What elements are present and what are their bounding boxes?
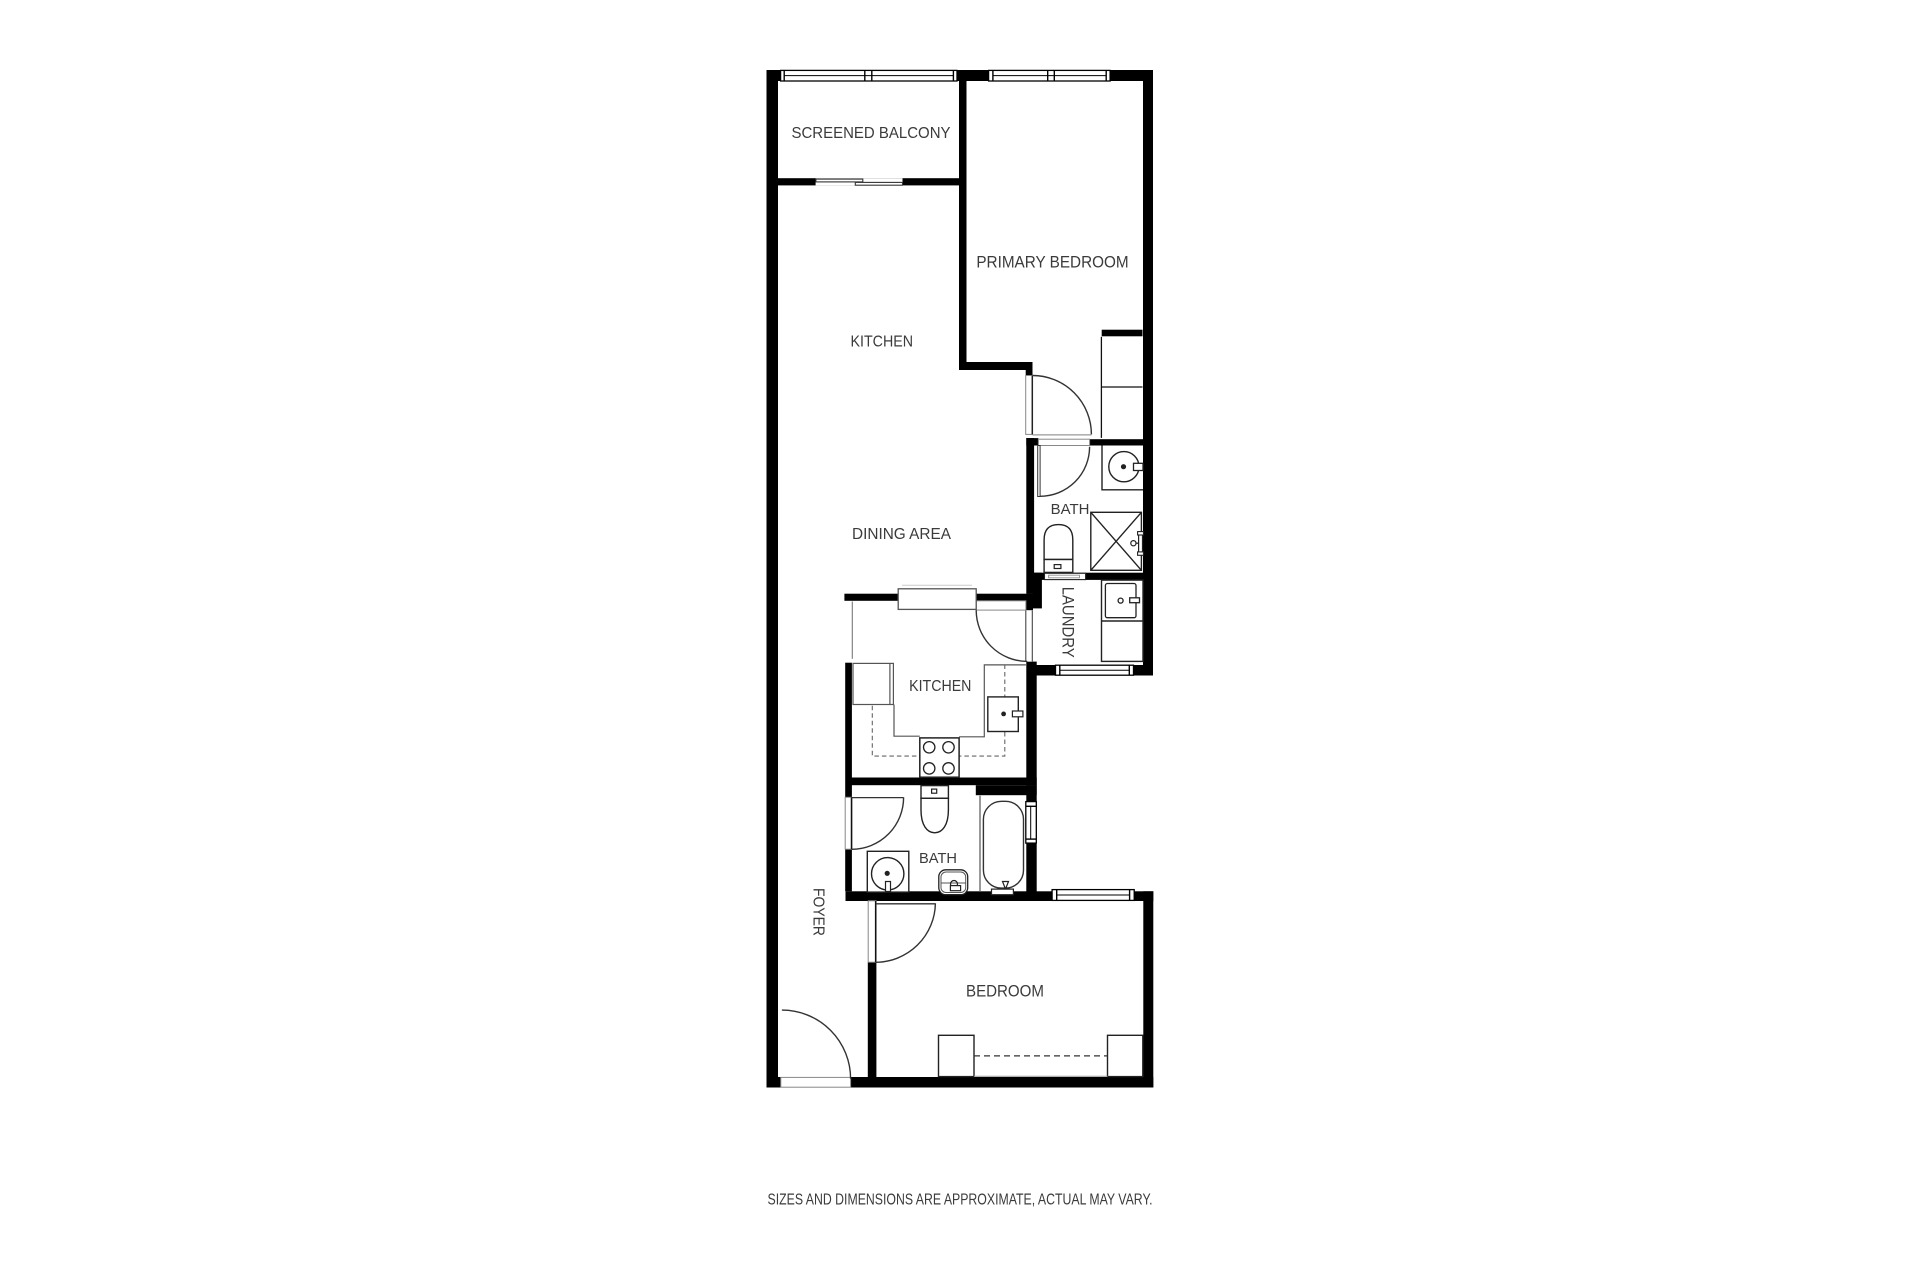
svg-text:DINING AREA: DINING AREA: [852, 526, 951, 543]
svg-text:BATH: BATH: [919, 850, 957, 867]
svg-text:SCREENED BALCONY: SCREENED BALCONY: [792, 125, 951, 142]
svg-text:KITCHEN: KITCHEN: [851, 334, 914, 351]
svg-text:SIZES AND DIMENSIONS ARE APPRO: SIZES AND DIMENSIONS ARE APPROXIMATE, AC…: [768, 1191, 1153, 1208]
svg-text:BATH: BATH: [1051, 501, 1090, 518]
svg-text:PRIMARY BEDROOM: PRIMARY BEDROOM: [976, 254, 1128, 272]
svg-text:KITCHEN: KITCHEN: [909, 678, 971, 695]
svg-text:FOYER: FOYER: [810, 888, 827, 936]
svg-text:BEDROOM: BEDROOM: [966, 982, 1044, 1000]
svg-text:LAUNDRY: LAUNDRY: [1059, 587, 1077, 658]
